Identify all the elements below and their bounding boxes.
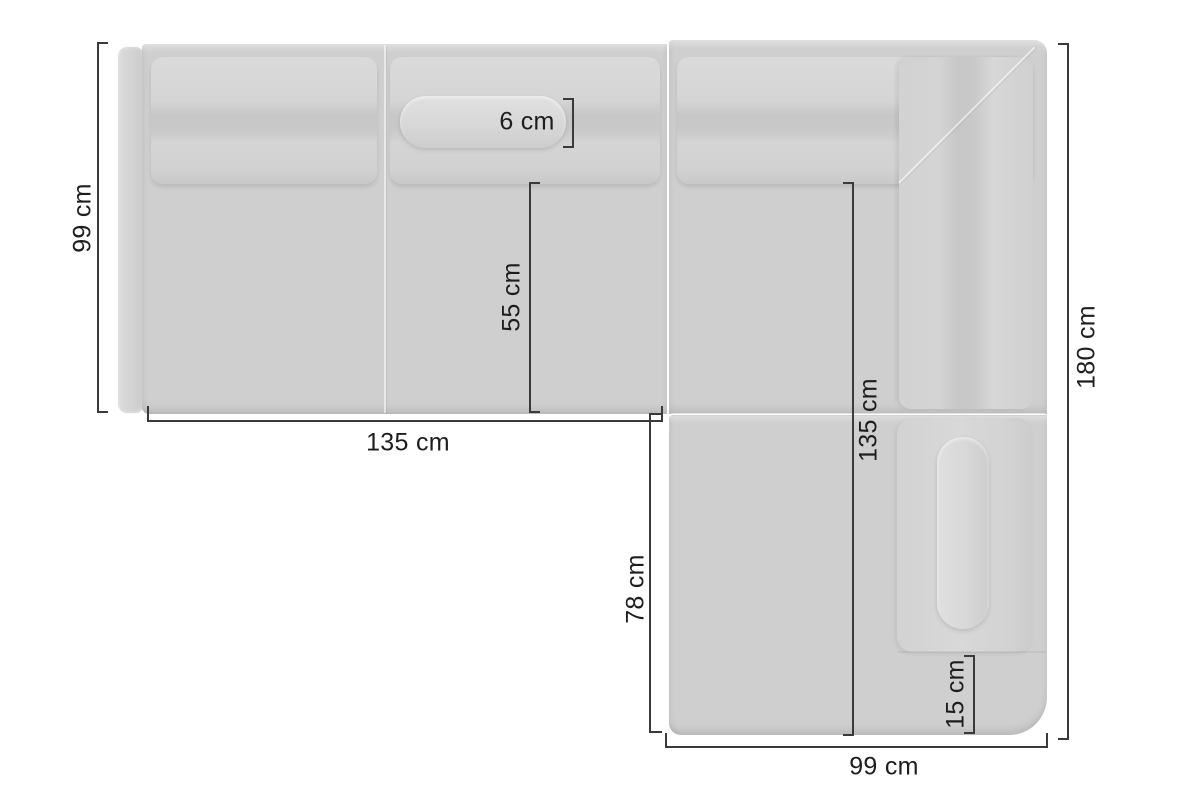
seam-left-modules — [384, 45, 386, 413]
dim-line — [1067, 43, 1069, 740]
dim-tick — [563, 146, 574, 148]
dim-line — [973, 655, 975, 734]
dim-tick — [843, 734, 854, 736]
sofa-dimension-diagram: 99 cm 135 cm 6 cm 55 cm 135 cm 180 cm — [0, 0, 1200, 800]
dim-label-section-width: 135 cm — [366, 431, 450, 456]
dim-line — [852, 182, 854, 736]
dim-line — [147, 420, 663, 422]
dim-label-inner-length: 135 cm — [857, 378, 882, 462]
dim-label-roll-cushion: 6 cm — [499, 110, 554, 135]
corner-back-cushion-right — [899, 57, 1033, 409]
dim-tick — [964, 655, 975, 657]
dim-label-chaise-length: 78 cm — [624, 554, 649, 624]
dim-tick — [563, 98, 574, 100]
dim-tick — [529, 182, 540, 184]
dim-label-seat-depth: 55 cm — [500, 262, 525, 332]
dim-label-base-height: 15 cm — [944, 659, 969, 729]
dim-tick — [1058, 43, 1069, 45]
dim-tick — [649, 413, 662, 415]
dim-line — [529, 182, 531, 413]
dim-tick — [97, 42, 108, 44]
dim-tick — [843, 182, 854, 184]
seam-chaise-base — [897, 651, 1045, 653]
dim-tick — [147, 406, 149, 421]
dim-line — [665, 746, 1048, 748]
dim-tick — [665, 733, 667, 747]
back-cushion-seat1 — [151, 57, 377, 184]
dim-label-side-depth: 99 cm — [71, 183, 96, 253]
dim-tick — [649, 731, 662, 733]
dim-label-chaise-width: 99 cm — [849, 755, 919, 780]
dim-tick — [529, 411, 540, 413]
dim-line — [572, 98, 574, 148]
dim-line — [97, 42, 99, 413]
dim-tick — [97, 411, 108, 413]
sofa-left-armrest — [118, 47, 144, 413]
dim-tick — [964, 732, 975, 734]
dim-label-total-length: 180 cm — [1075, 305, 1100, 389]
chaise-roll-bolster — [937, 437, 989, 629]
dim-tick — [1046, 733, 1048, 747]
dim-tick — [1058, 738, 1069, 740]
